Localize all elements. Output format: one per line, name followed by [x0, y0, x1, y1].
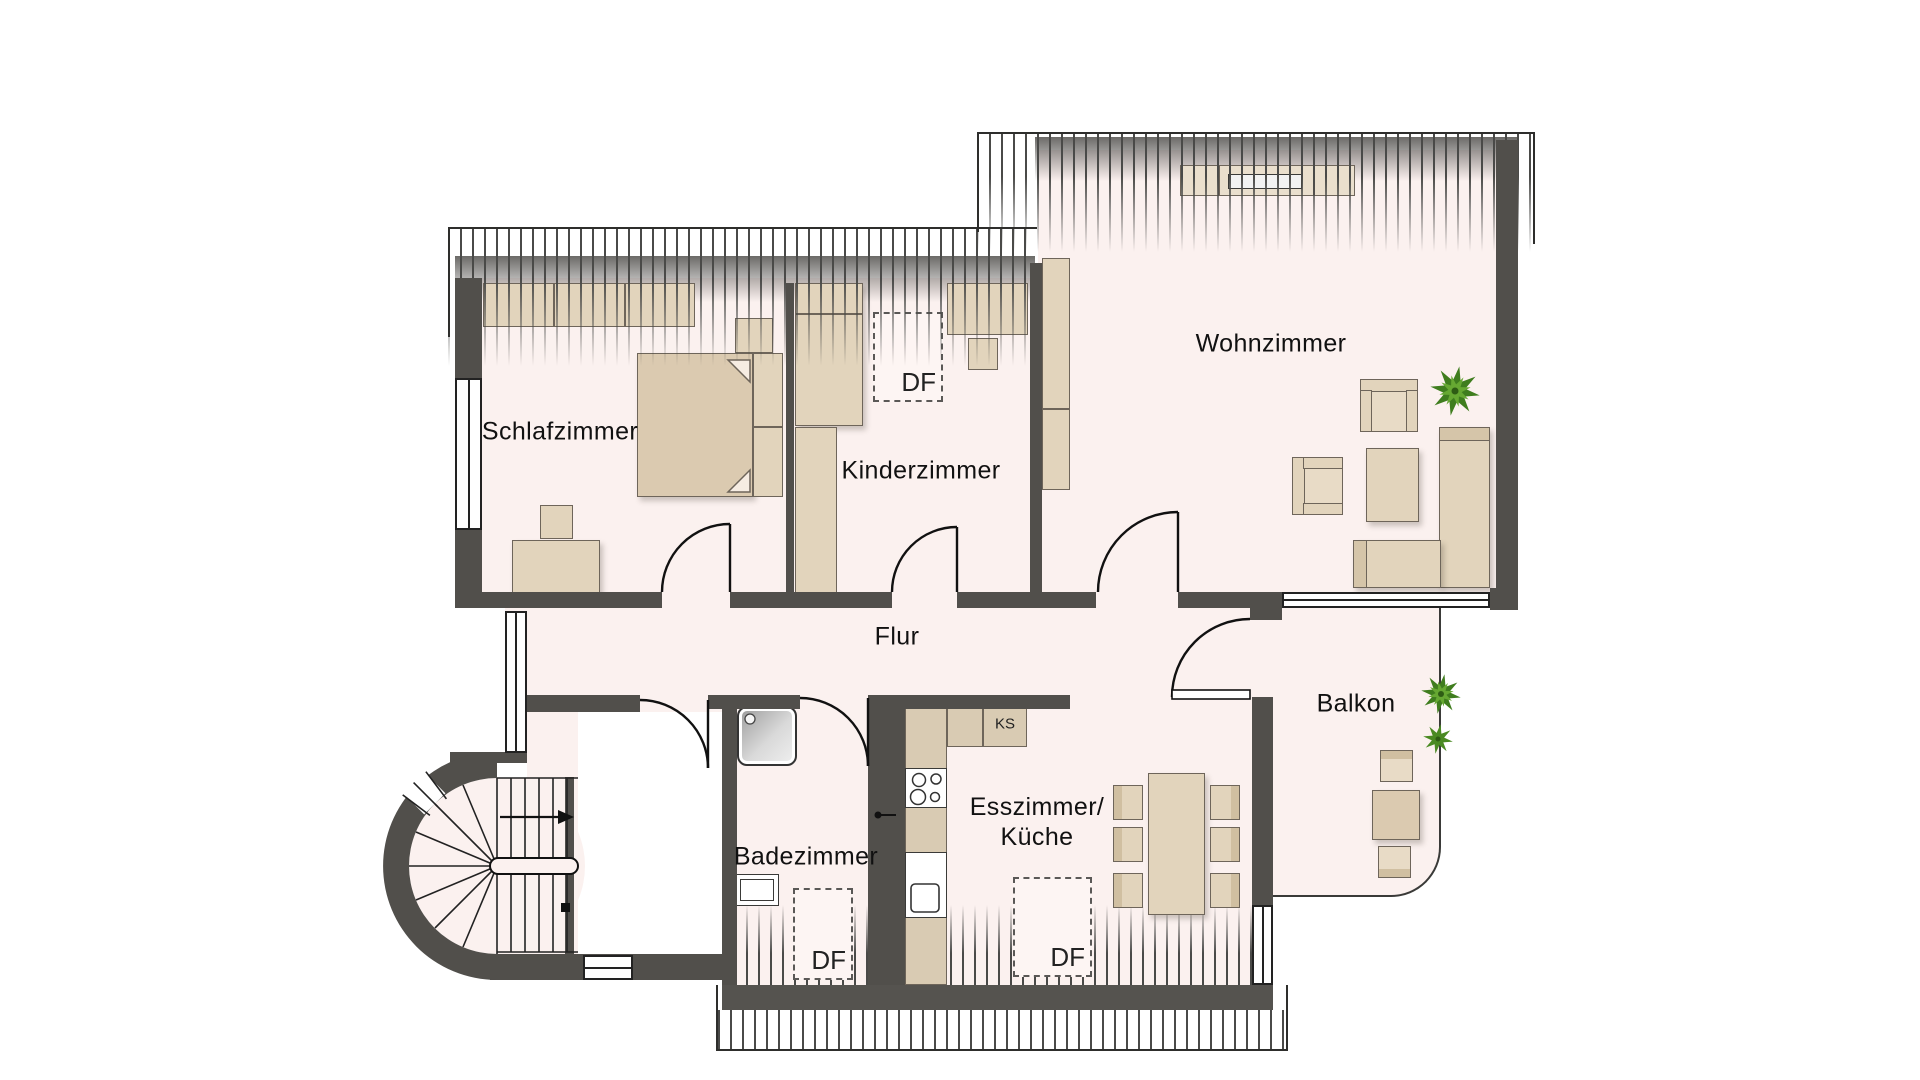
room-label-kinderzimmer: Kinderzimmer — [842, 457, 1001, 486]
door-kinderzimmer — [892, 527, 957, 592]
sink-basin — [911, 884, 939, 912]
door-badezimmer — [800, 698, 868, 766]
plant-icon — [1421, 674, 1460, 713]
stove-burners — [911, 774, 942, 805]
room-label-schlafzimmer: Schlafzimmer — [482, 418, 638, 447]
room-label-esszimmer-line1: Esszimmer/ — [970, 792, 1105, 822]
bed-pillows — [728, 360, 750, 492]
stairs-handrail — [490, 858, 578, 874]
door-balkon — [1172, 619, 1250, 699]
room-label-balkon: Balkon — [1317, 690, 1396, 719]
door-wohnzimmer — [1098, 512, 1178, 592]
shower-drain — [745, 714, 755, 724]
room-label-esszimmer-kueche: Esszimmer/ Küche — [970, 792, 1105, 852]
plant-icon — [1430, 366, 1479, 415]
wc-detail — [875, 812, 897, 819]
floor-plan: DF DF KS DF — [0, 0, 1920, 1080]
plan-linework — [0, 0, 1920, 1080]
room-label-badezimmer: Badezimmer — [734, 843, 878, 872]
door-schlafzimmer — [662, 524, 730, 592]
room-label-wohnzimmer: Wohnzimmer — [1196, 330, 1347, 359]
room-label-esszimmer-line2: Küche — [970, 822, 1105, 852]
door-treppe — [640, 700, 708, 768]
room-label-flur: Flur — [875, 623, 920, 652]
doors — [640, 512, 1250, 768]
plant-icon — [1423, 724, 1453, 754]
